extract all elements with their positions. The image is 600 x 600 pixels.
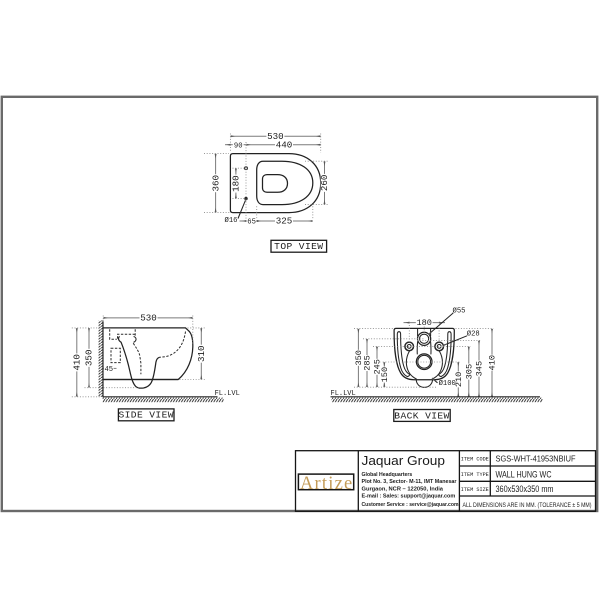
svg-text:Plot No. 3, Sector- M-11, IMT: Plot No. 3, Sector- M-11, IMT Manesar — [362, 479, 458, 485]
svg-text:ITEM SIZE: ITEM SIZE — [461, 487, 489, 493]
svg-text:180: 180 — [416, 318, 431, 328]
svg-text:ALL DIMENSIONS ARE IN MM. (TOL: ALL DIMENSIONS ARE IN MM. (TOLERANCE ± 5… — [463, 502, 592, 509]
svg-text:WALL HUNG WC: WALL HUNG WC — [496, 469, 552, 479]
svg-text:FL.LVL: FL.LVL — [215, 390, 240, 398]
svg-text:Ø55: Ø55 — [453, 307, 466, 316]
svg-text:325: 325 — [276, 216, 293, 227]
svg-text:Global Headquarters: Global Headquarters — [362, 472, 413, 478]
svg-text:Jaquar Group: Jaquar Group — [362, 453, 446, 468]
svg-text:E-mail : Sales: support@jaquar: E-mail : Sales: support@jaquar.com — [362, 494, 456, 500]
svg-text:Customer Service : service@jaq: Customer Service : service@jaquar.com — [362, 502, 459, 508]
svg-text:SGS-WHT-41953NBIUF: SGS-WHT-41953NBIUF — [496, 454, 576, 464]
svg-text:180: 180 — [231, 175, 242, 192]
svg-text:65: 65 — [247, 219, 256, 227]
svg-text:530: 530 — [140, 313, 157, 324]
svg-text:Ø16: Ø16 — [225, 216, 238, 225]
svg-text:Ø28: Ø28 — [467, 329, 480, 338]
svg-text:440: 440 — [276, 139, 293, 150]
svg-text:150: 150 — [380, 367, 390, 382]
svg-text:Gurgaon, NCR – 122050, India: Gurgaon, NCR – 122050, India — [362, 486, 444, 492]
svg-text:FL.LVL: FL.LVL — [331, 390, 356, 398]
svg-text:360: 360 — [210, 175, 221, 192]
svg-text:90: 90 — [234, 142, 243, 150]
svg-text:350: 350 — [84, 350, 95, 367]
svg-text:410: 410 — [72, 354, 83, 371]
svg-text:285: 285 — [363, 355, 373, 370]
svg-text:ITEM TYPE: ITEM TYPE — [461, 472, 489, 478]
svg-text:345: 345 — [475, 361, 485, 376]
svg-text:360x530x350 mm: 360x530x350 mm — [496, 484, 554, 494]
svg-text:305: 305 — [464, 364, 474, 379]
svg-text:BACK VIEW: BACK VIEW — [394, 410, 449, 421]
svg-text:45: 45 — [104, 366, 113, 374]
svg-text:Ø100: Ø100 — [439, 379, 456, 388]
svg-text:310: 310 — [196, 345, 207, 362]
svg-text:260: 260 — [319, 175, 330, 192]
svg-text:TOP VIEW: TOP VIEW — [274, 241, 323, 252]
svg-text:410: 410 — [488, 355, 498, 370]
svg-text:ITEM CODE: ITEM CODE — [461, 457, 489, 463]
svg-text:SIDE VIEW: SIDE VIEW — [118, 410, 173, 421]
svg-text:Artize: Artize — [300, 474, 353, 494]
